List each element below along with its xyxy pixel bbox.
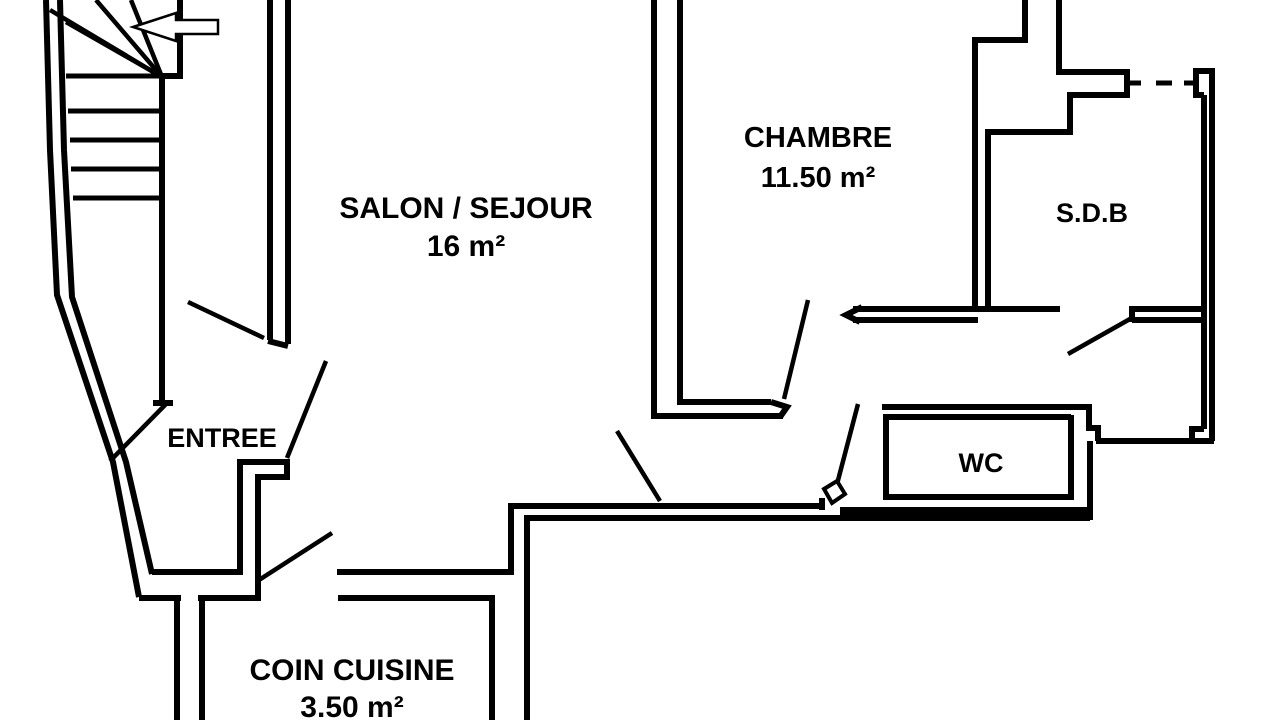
outer-wall-left-inner: [60, 0, 152, 574]
label-salon: SALON / SEJOUR: [339, 192, 593, 225]
kitchen-door-swing: [259, 533, 332, 580]
wc-right-notch: [1089, 404, 1098, 441]
stair-steps: [66, 76, 162, 198]
walls: [46, 0, 1214, 720]
salon-corridor-door-swing: [617, 431, 660, 501]
floor-plan: SALON / SEJOUR 16 m² CHAMBRE 11.50 m² S.…: [0, 0, 1280, 720]
stair-winder-treads: [50, 0, 162, 77]
label-entree: ENTREE: [167, 423, 277, 453]
floor-plan-page: SALON / SEJOUR 16 m² CHAMBRE 11.50 m² S.…: [0, 0, 1280, 720]
sdb-door-swing: [1068, 319, 1130, 354]
chambre-right-wall-inner: [988, 0, 1127, 308]
salon-chambre-wall-left: [654, 0, 783, 416]
entry-hall-door-swing: [287, 361, 326, 458]
wc-door-hinge: [824, 481, 845, 503]
stair-winder-line: [96, 0, 162, 77]
sdb-bottom-wall-endcap: [846, 307, 862, 322]
label-cuisine: COIN CUISINE: [249, 654, 454, 687]
stair-right-wall: [162, 0, 180, 401]
entry-salon-door-swing: [188, 302, 264, 338]
staircase: [50, 0, 218, 198]
label-salon-area: 16 m²: [427, 230, 505, 263]
chambre-right-wall-outer: [975, 0, 1025, 309]
room-labels: SALON / SEJOUR 16 m² CHAMBRE 11.50 m² S.…: [167, 122, 1128, 720]
label-cuisine-area: 3.50 m²: [300, 691, 403, 720]
label-sdb: S.D.B: [1056, 198, 1128, 228]
salon-chambre-wall-right: [680, 0, 771, 402]
label-wc: WC: [959, 448, 1004, 478]
label-chambre-area: 11.50 m²: [761, 162, 876, 194]
wc-door-swing: [836, 404, 858, 488]
chambre-door-swing: [784, 300, 808, 399]
entry-kitchen-wall: [240, 462, 287, 601]
label-chambre: CHAMBRE: [744, 122, 892, 154]
